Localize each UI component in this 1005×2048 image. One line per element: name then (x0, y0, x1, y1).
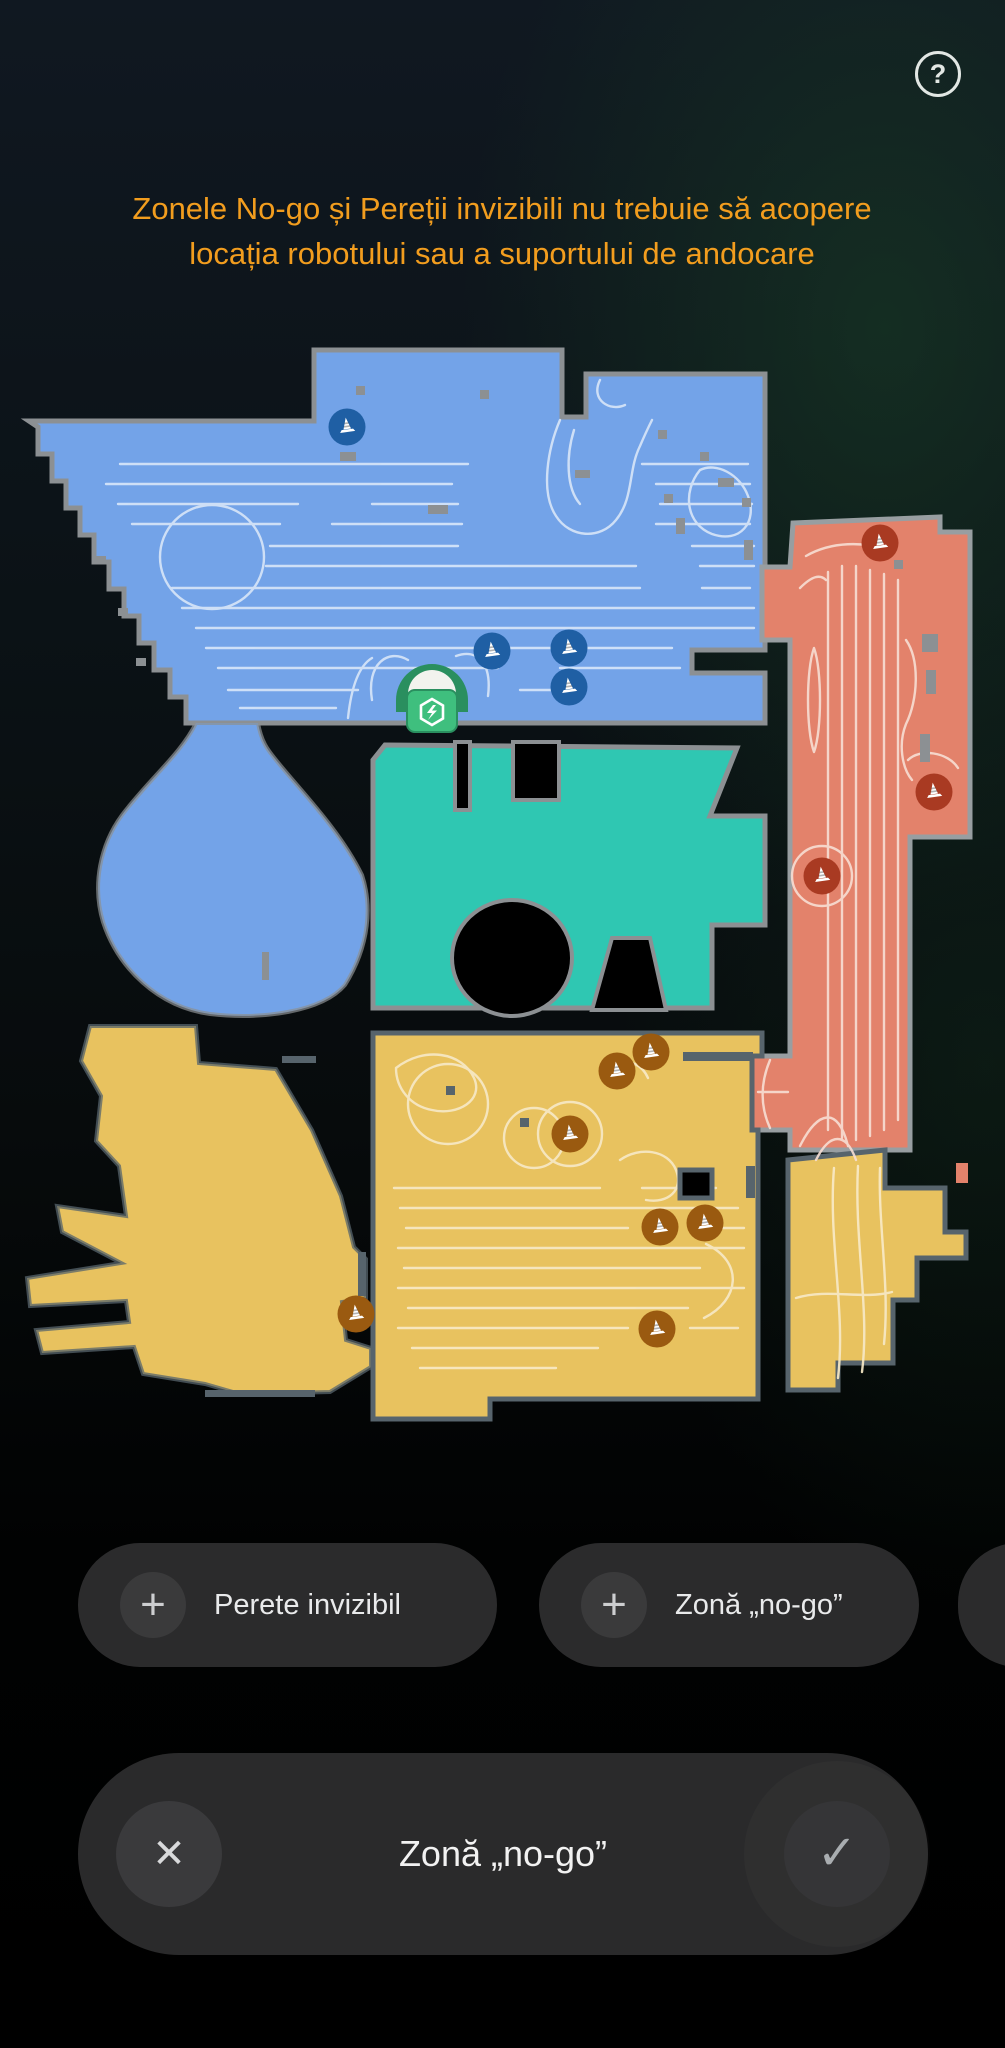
obstacle-cone-marker[interactable] (642, 1209, 679, 1246)
add-no-go-zone-button[interactable]: + Zonă „no-go” (539, 1543, 919, 1667)
map-edit-screen: ? Zonele No-go și Pereții invizibili nu … (0, 0, 1005, 2048)
cancel-button[interactable]: ✕ (116, 1801, 222, 1907)
close-icon: ✕ (152, 1834, 186, 1874)
obstacle-cone-marker[interactable] (633, 1034, 670, 1071)
obstacle-cone-marker[interactable] (916, 774, 953, 811)
obstacle-cone-marker[interactable] (687, 1205, 724, 1242)
obstacle-cone-marker[interactable] (804, 858, 841, 895)
room-yellow-left[interactable] (27, 1026, 371, 1394)
room-yellow-bottom-right[interactable] (788, 1150, 966, 1390)
room-blue-funnel[interactable] (98, 723, 368, 1016)
room-salmon[interactable] (752, 517, 970, 1150)
obstacle-cone-marker[interactable] (599, 1053, 636, 1090)
obstacle-cone-marker[interactable] (552, 1116, 589, 1153)
plus-glyph: + (140, 1583, 166, 1627)
add-invisible-wall-button[interactable]: + Perete invizibil (78, 1543, 497, 1667)
obstacle-cone-marker[interactable] (329, 409, 366, 446)
plus-glyph: + (601, 1583, 627, 1627)
obstacle-cone-marker[interactable] (551, 630, 588, 667)
plus-icon: + (120, 1572, 186, 1638)
confirm-button[interactable]: ✓ (784, 1801, 890, 1907)
teal-hole (452, 900, 572, 1016)
button-label: Perete invizibil (214, 1589, 401, 1622)
obstacle-cone-marker[interactable] (474, 633, 511, 670)
action-bar-title: Zonă „no-go” (260, 1833, 746, 1875)
yellow-room-hole (680, 1170, 712, 1198)
teal-notch (455, 742, 470, 810)
obstacle-cone-marker[interactable] (338, 1296, 375, 1333)
salmon-fragment (956, 1163, 968, 1183)
check-icon: ✓ (817, 1830, 857, 1878)
obstacle-cone-marker[interactable] (862, 525, 899, 562)
plus-icon: + (581, 1572, 647, 1638)
button-label: Zonă „no-go” (675, 1589, 843, 1622)
map-canvas[interactable] (0, 0, 1005, 2048)
edit-action-bar: ✕ Zonă „no-go” ✓ (78, 1753, 928, 1955)
obstacle-cone-marker[interactable] (639, 1311, 676, 1348)
obstacle-cone-marker[interactable] (551, 669, 588, 706)
teal-notch (513, 742, 559, 800)
